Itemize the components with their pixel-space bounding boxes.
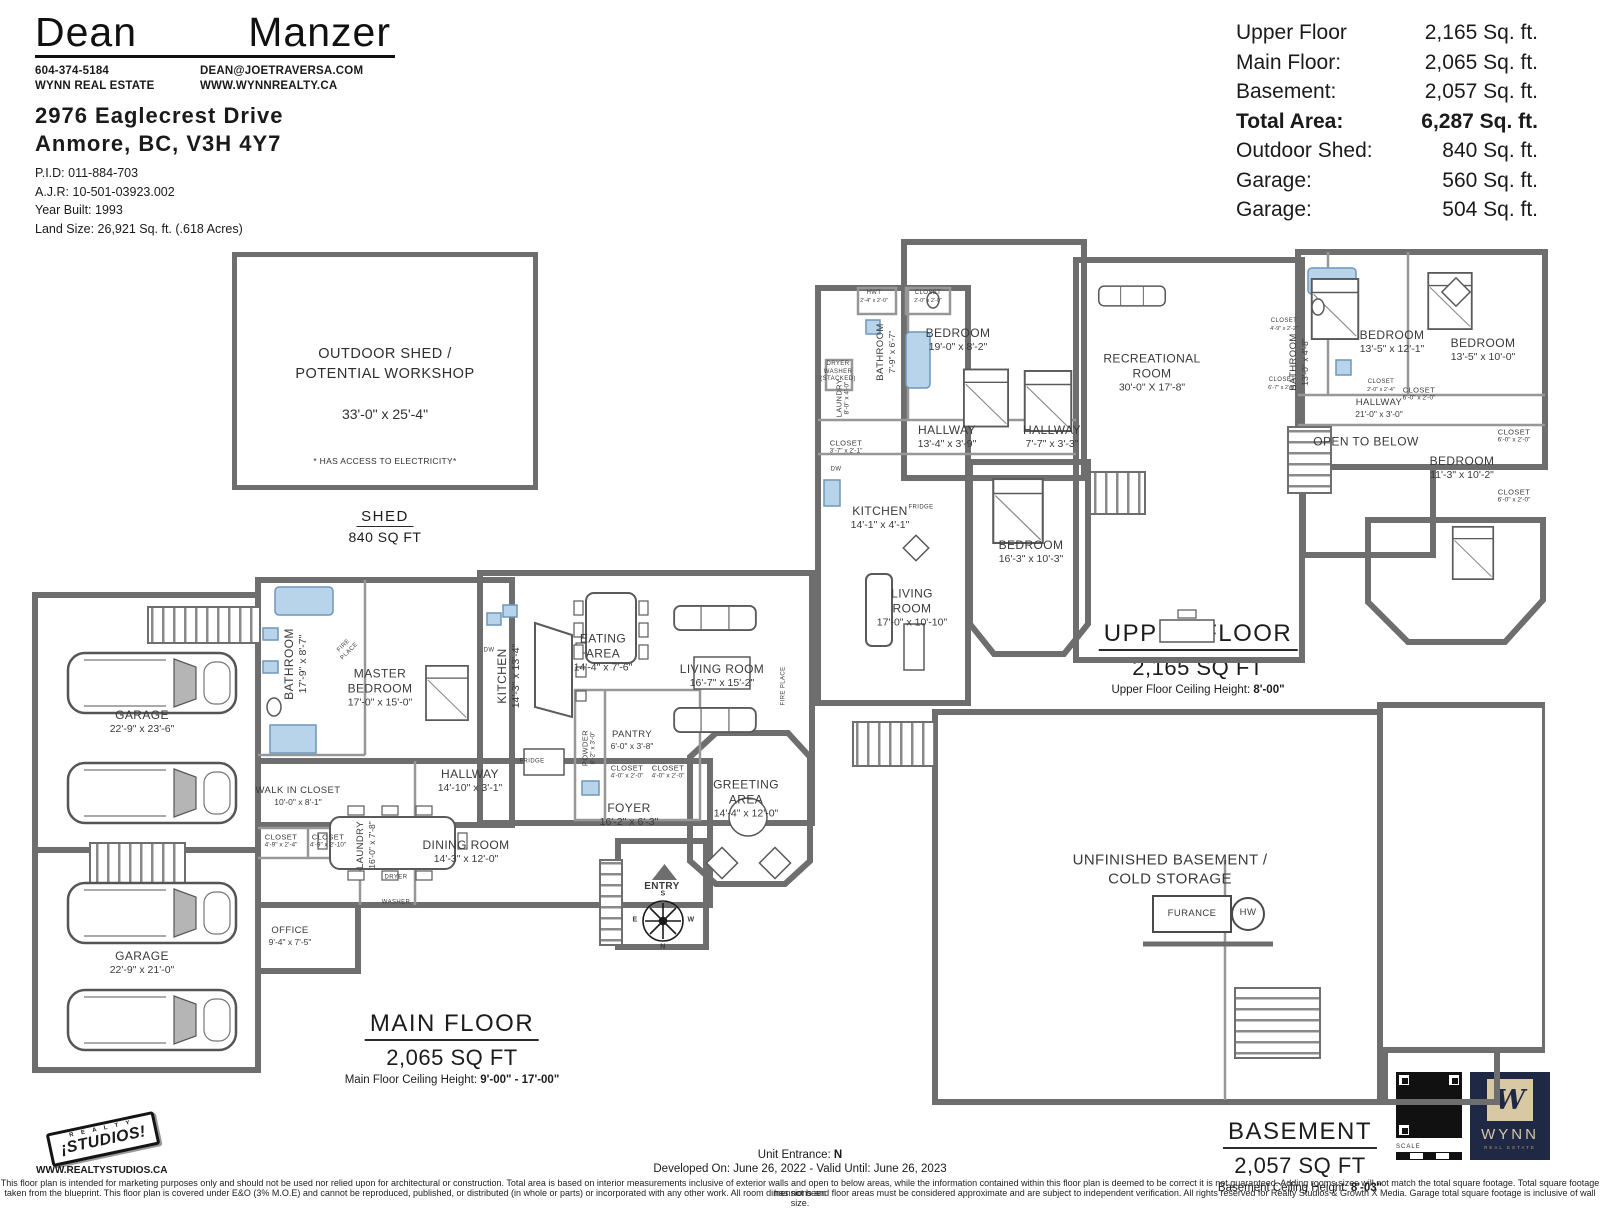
- agent-phone: 604-374-5184: [35, 64, 200, 79]
- agent-website: WWW.WYNNREALTY.CA: [200, 79, 395, 94]
- agent-contact: 604-374-5184 DEAN@JOETRAVERSA.COM WYNN R…: [35, 64, 395, 94]
- fridge: [524, 749, 564, 775]
- upper-floor-plan: [808, 232, 1548, 712]
- floor-plan-sheet: { "header": { "agent_first": "Dean", "ag…: [0, 0, 1600, 1200]
- basement-name: BASEMENT: [1223, 1118, 1377, 1149]
- summary-label: Total Area:: [1236, 107, 1343, 137]
- wynn-name: WYNN: [1481, 1126, 1539, 1143]
- agent-header: Dean Manzer 604-374-5184 DEAN@JOETRAVERS…: [35, 12, 395, 238]
- agent-first-name: Dean: [35, 12, 137, 53]
- hot-water-tank: [1232, 898, 1264, 930]
- coffee-table: [694, 657, 750, 689]
- agent-name: Dean Manzer: [35, 12, 395, 58]
- summary-label: Garage:: [1236, 195, 1312, 225]
- car: [68, 883, 236, 943]
- basement-equipment: [1143, 896, 1273, 944]
- basement-stairs: [853, 722, 1320, 1058]
- agent-company: WYNN REAL ESTATE: [35, 79, 200, 94]
- upper-floor-stairs: [1090, 427, 1331, 514]
- shed-name: SHED: [356, 508, 414, 527]
- property-pid: P.I.D: 011-884-703: [35, 164, 395, 183]
- basement-plan: [845, 700, 1545, 1110]
- summary-label: Garage:: [1236, 166, 1312, 196]
- scale-bar: [1396, 1152, 1462, 1160]
- bed: [993, 479, 1043, 543]
- scale-label: SCALE: [1396, 1144, 1421, 1150]
- armchair: [903, 535, 928, 560]
- main-floor-plan: [30, 565, 815, 1080]
- dining-table: [330, 817, 455, 869]
- summary-row-total: Total Area:6,287 Sq. ft.: [1236, 107, 1538, 137]
- address-line-2: Anmore, BC, V3H 4Y7: [35, 130, 395, 158]
- sofa: [674, 708, 756, 732]
- toilet: [1312, 299, 1324, 315]
- summary-value: 2,057 Sq. ft.: [1425, 77, 1538, 107]
- agent-last-name: Manzer: [248, 12, 391, 53]
- shed-outline: OUTDOOR SHED / POTENTIAL WORKSHOP 33'-0"…: [232, 252, 538, 490]
- unit-entrance: Unit Entrance: N: [0, 1149, 1600, 1161]
- car: [68, 763, 236, 823]
- shed-title: OUTDOOR SHED / POTENTIAL WORKSHOP: [295, 345, 474, 384]
- summary-row-main: Main Floor:2,065 Sq. ft.: [1236, 48, 1538, 78]
- property-ajr: A.J.R: 10-501-03923.002: [35, 183, 395, 202]
- summary-value: 2,165 Sq. ft.: [1425, 18, 1538, 48]
- sofa: [1099, 286, 1165, 306]
- summary-row-garage1: Garage:560 Sq. ft.: [1236, 166, 1538, 196]
- entry-marker: [652, 864, 677, 880]
- summary-value: 6,287 Sq. ft.: [1421, 107, 1538, 137]
- bed: [1453, 527, 1494, 579]
- furnace-box: [1153, 896, 1231, 932]
- summary-row-upper: Upper Floor2,165 Sq. ft.: [1236, 18, 1538, 48]
- summary-label: Upper Floor: [1236, 18, 1347, 48]
- compass-rose-icon: [643, 901, 683, 941]
- summary-value: 2,065 Sq. ft.: [1425, 48, 1538, 78]
- summary-label: Outdoor Shed:: [1236, 136, 1373, 166]
- bed: [426, 666, 468, 720]
- shed-note: * HAS ACCESS TO ELECTRICITY*: [313, 456, 456, 466]
- car: [68, 990, 236, 1050]
- bed: [964, 369, 1008, 426]
- round-table: [729, 798, 767, 836]
- disclaimer-line-2: taken from the blueprint. This floor pla…: [0, 1188, 1600, 1208]
- property-meta: P.I.D: 011-884-703 A.J.R: 10-501-03923.0…: [35, 164, 395, 238]
- summary-label: Main Floor:: [1236, 48, 1341, 78]
- summary-value: 504 Sq. ft.: [1442, 195, 1538, 225]
- bed: [1025, 371, 1072, 431]
- summary-value: 840 Sq. ft.: [1442, 136, 1538, 166]
- realty-studios-url: WWW.REALTYSTUDIOS.CA: [36, 1165, 167, 1176]
- armchair: [759, 847, 790, 878]
- unit-entrance-prefix: Unit Entrance:: [758, 1149, 834, 1161]
- qr-finder-icon: [1396, 1122, 1412, 1138]
- unit-entrance-value: N: [834, 1149, 842, 1161]
- shed-dimensions: 33'-0" x 25'-4": [342, 406, 428, 422]
- side-table: [904, 624, 924, 670]
- developed-line: Developed On: June 26, 2022 - Valid Unti…: [0, 1163, 1600, 1175]
- car: [68, 653, 236, 713]
- summary-label: Basement:: [1236, 77, 1336, 107]
- property-address: 2976 Eaglecrest Drive Anmore, BC, V3H 4Y…: [35, 102, 395, 158]
- toilet: [927, 292, 939, 308]
- sofa: [674, 606, 756, 630]
- summary-row-shed: Outdoor Shed:840 Sq. ft.: [1236, 136, 1538, 166]
- sofa: [866, 574, 892, 646]
- summary-row-basement: Basement:2,057 Sq. ft.: [1236, 77, 1538, 107]
- eating-table: [586, 593, 636, 663]
- summary-row-garage2: Garage:504 Sq. ft.: [1236, 195, 1538, 225]
- area-summary: Upper Floor2,165 Sq. ft. Main Floor:2,06…: [1236, 18, 1538, 225]
- desk: [1160, 620, 1214, 642]
- address-line-1: 2976 Eaglecrest Drive: [35, 102, 395, 130]
- property-year-built: Year Built: 1993: [35, 201, 395, 220]
- shed-label: SHED 840 SQ FT: [349, 508, 422, 545]
- toilet: [267, 698, 281, 716]
- upper-floor-furniture: [866, 273, 1493, 670]
- property-land-size: Land Size: 26,921 Sq. ft. (.618 Acres): [35, 220, 395, 239]
- summary-value: 560 Sq. ft.: [1442, 166, 1538, 196]
- agent-email: DEAN@JOETRAVERSA.COM: [200, 64, 395, 79]
- shed-sqft: 840 SQ FT: [349, 529, 422, 545]
- wynn-sub: REAL ESTATE: [1484, 1145, 1536, 1150]
- kitchen-island: [535, 623, 572, 717]
